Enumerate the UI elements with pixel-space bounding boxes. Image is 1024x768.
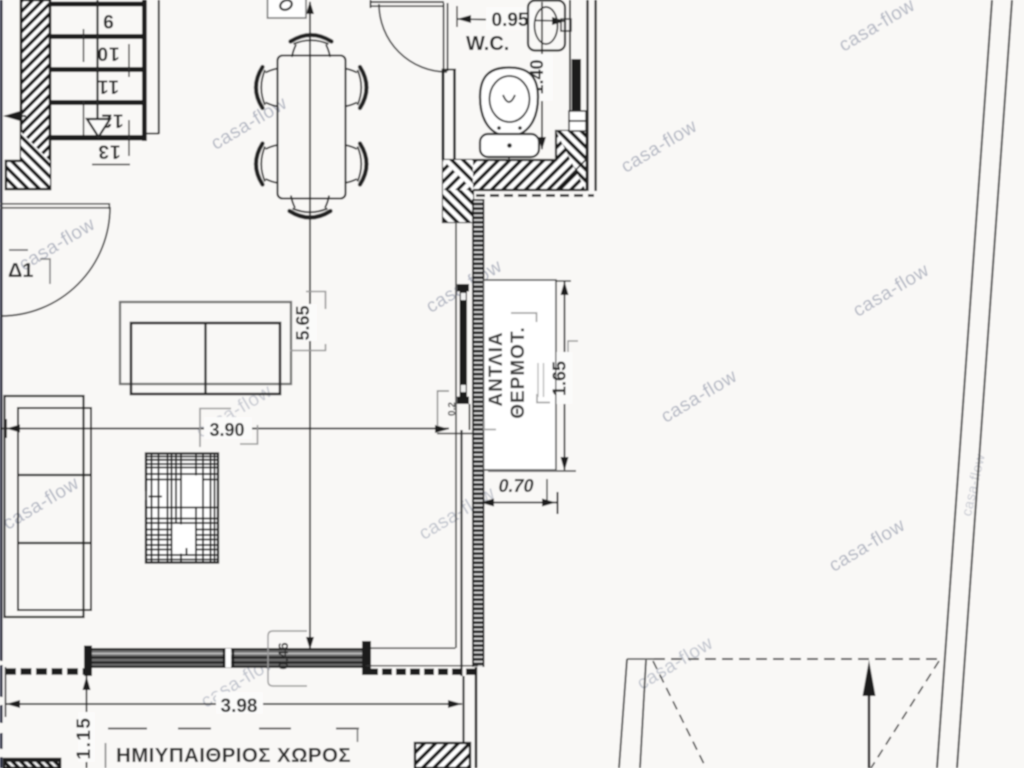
svg-text:3.98: 3.98 [221, 696, 258, 717]
svg-text:9: 9 [102, 10, 114, 31]
svg-text:ΘΕΡΜΟΤ.: ΘΕΡΜΟΤ. [508, 326, 529, 419]
svg-text:0.46: 0.46 [275, 642, 291, 669]
svg-text:11: 11 [97, 76, 119, 97]
svg-text:ΗΜΙΥΠΑΙΘΡΙΟΣ ΧΩΡΟΣ: ΗΜΙΥΠΑΙΘΡΙΟΣ ΧΩΡΟΣ [116, 744, 351, 767]
svg-text:0.70: 0.70 [498, 476, 533, 496]
svg-text:10: 10 [96, 43, 119, 64]
svg-text:Δ1: Δ1 [8, 260, 34, 282]
svg-text:5.65: 5.65 [293, 305, 313, 340]
svg-text:3.90: 3.90 [209, 420, 244, 440]
svg-text:W.C.: W.C. [466, 33, 509, 55]
svg-text:13: 13 [97, 141, 120, 162]
svg-text:ΑΝΤΛΙΑ: ΑΝΤΛΙΑ [486, 331, 507, 406]
svg-text:1.15: 1.15 [74, 717, 95, 760]
svg-text:0.95: 0.95 [492, 10, 529, 31]
svg-text:0.2: 0.2 [447, 402, 458, 416]
svg-text:1.65: 1.65 [550, 361, 570, 396]
